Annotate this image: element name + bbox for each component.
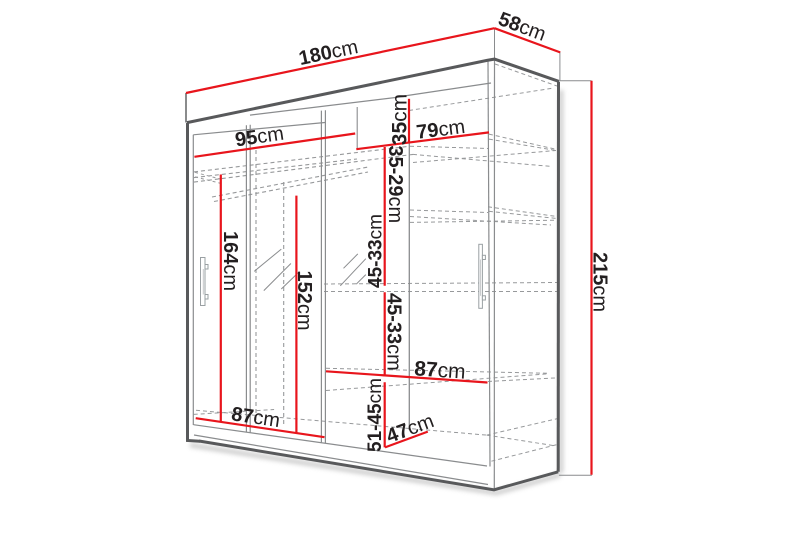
svg-text:152cm: 152cm (293, 270, 315, 330)
svg-text:87cm: 87cm (414, 357, 467, 384)
svg-text:51-45cm: 51-45cm (365, 378, 386, 452)
svg-text:35cm: 35cm (388, 94, 411, 145)
svg-text:215cm: 215cm (589, 252, 611, 312)
svg-text:164cm: 164cm (219, 231, 241, 291)
svg-text:45-33cm: 45-33cm (365, 214, 386, 288)
svg-text:35-29cm: 35-29cm (384, 145, 406, 223)
svg-text:45-33cm: 45-33cm (382, 293, 404, 371)
